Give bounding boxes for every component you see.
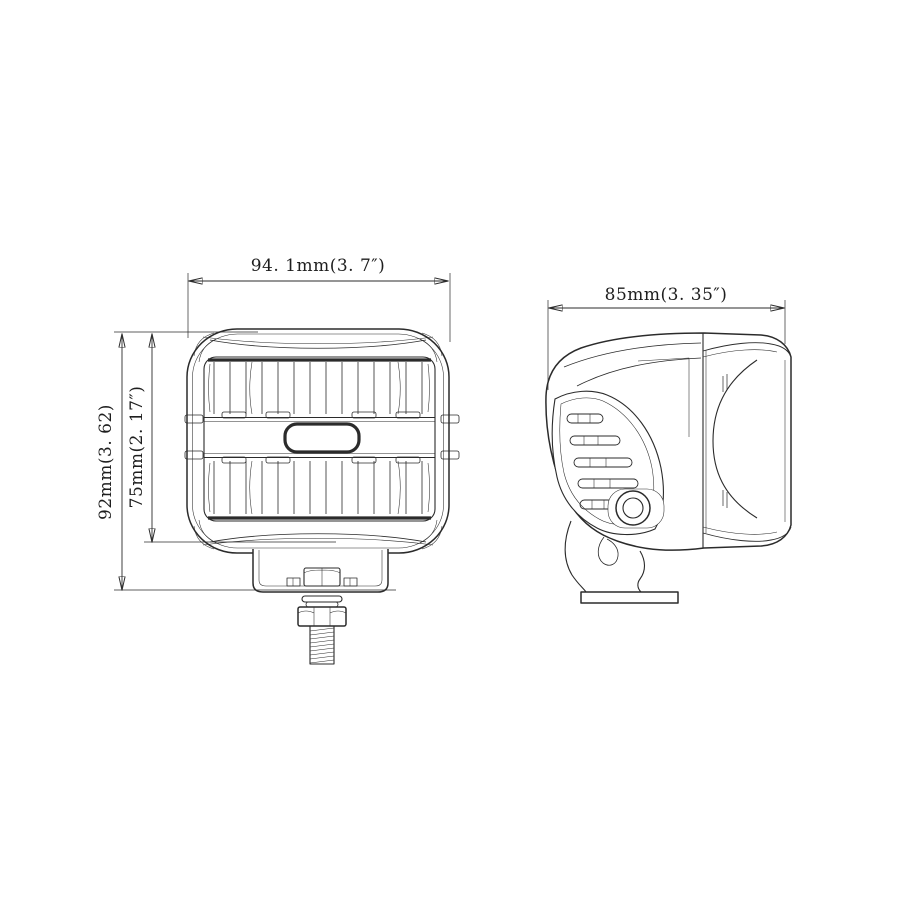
washer: [302, 596, 342, 602]
thread-hatch: [310, 628, 334, 663]
pedestal-base: [581, 592, 678, 603]
center-lens-window: [285, 424, 359, 452]
technical-drawing-page: 94. 1mm(3. 7″) 92mm(3. 62) 75mm(2. 17″) …: [0, 0, 900, 900]
dim-label-front-height-inner: 75mm(2. 17″): [127, 386, 147, 509]
breather-button: [608, 489, 664, 528]
mounting-bracket: [253, 549, 388, 592]
dim-label-front-height-outer: 92mm(3. 62): [96, 404, 116, 520]
mounting-bolt: [298, 596, 346, 664]
front-view: [185, 329, 459, 664]
dim-label-front-width: 94. 1mm(3. 7″): [251, 256, 386, 276]
hex-nut: [298, 607, 346, 626]
led-light-technical-drawing: 94. 1mm(3. 7″) 92mm(3. 62) 75mm(2. 17″) …: [0, 0, 900, 900]
side-view: [546, 333, 791, 603]
dim-label-side-width: 85mm(3. 35″): [605, 285, 728, 305]
